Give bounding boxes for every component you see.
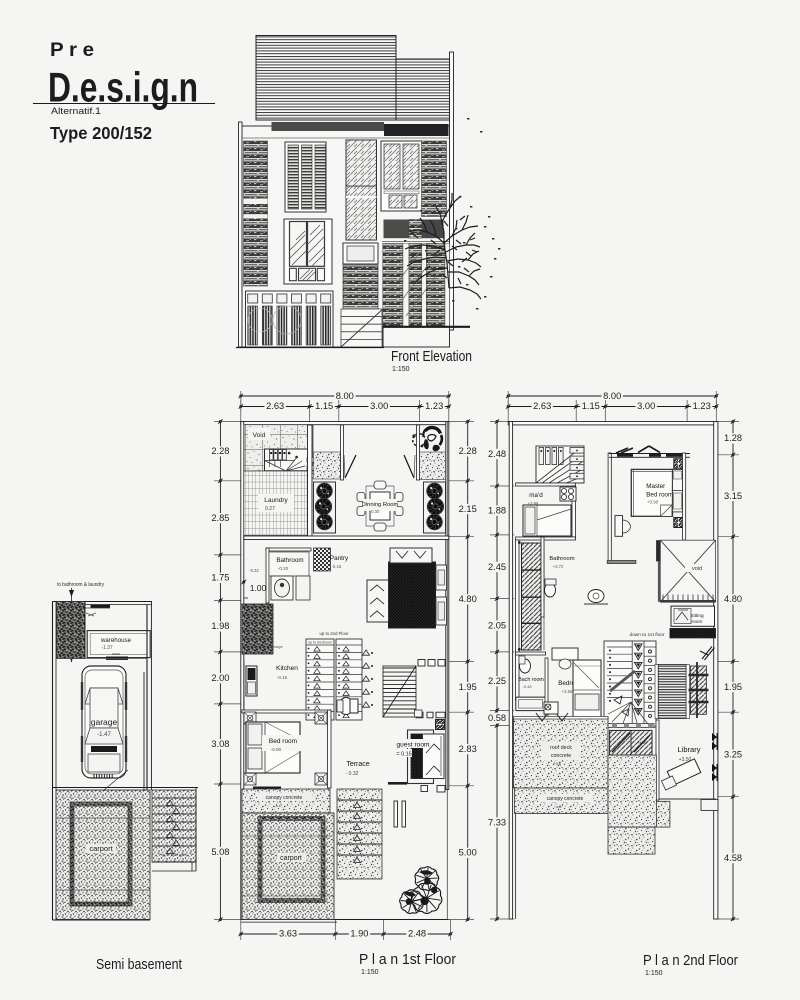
svg-text:1.88: 1.88: [488, 505, 506, 515]
svg-text:1:150: 1:150: [361, 969, 379, 976]
svg-text:2.63: 2.63: [266, 401, 284, 411]
svg-text:4.58: 4.58: [724, 853, 742, 863]
svg-text:1.15: 1.15: [315, 401, 333, 411]
svg-text:1.98: 1.98: [211, 621, 229, 631]
svg-text:-0.48: -0.48: [522, 684, 532, 689]
svg-text:0.27: 0.27: [265, 506, 275, 512]
svg-text:warehouse: warehouse: [100, 637, 131, 644]
svg-text:1.23: 1.23: [693, 401, 711, 411]
svg-text:Semi basement: Semi basement: [96, 957, 182, 973]
svg-text:carport: carport: [89, 844, 113, 853]
svg-text:7.33: 7.33: [488, 817, 506, 827]
svg-text:P l a n 1st Floor: P l a n 1st Floor: [359, 952, 456, 968]
svg-text:room: room: [692, 619, 703, 625]
svg-text:2.48: 2.48: [488, 449, 506, 459]
svg-text:+3.55: +3.55: [562, 689, 573, 694]
svg-text:3.63: 3.63: [279, 928, 297, 938]
svg-text:-0.15: -0.15: [277, 675, 288, 680]
svg-text:-1.37: -1.37: [101, 645, 113, 651]
svg-text:2.45: 2.45: [488, 562, 506, 572]
svg-text:1.15: 1.15: [582, 401, 600, 411]
svg-text:3.08: 3.08: [211, 739, 229, 749]
svg-text:Kitchen: Kitchen: [276, 665, 298, 672]
svg-text:Bed room: Bed room: [646, 492, 673, 499]
svg-text:guest room: guest room: [397, 742, 430, 749]
svg-text:canopy concrete: canopy concrete: [547, 796, 584, 802]
svg-text:2.05: 2.05: [488, 620, 506, 630]
svg-text:+3.72: +3.72: [553, 564, 564, 569]
svg-text:-0.90: -0.90: [271, 747, 282, 752]
svg-text:Bathroom: Bathroom: [549, 556, 574, 562]
svg-text:-0.20: -0.20: [278, 566, 289, 571]
svg-text:P l a n 2nd Floor: P l a n 2nd Floor: [643, 953, 738, 969]
svg-text:Terrace: Terrace: [346, 761, 369, 768]
svg-text:carport: carport: [280, 855, 302, 862]
svg-text:up to bedroom: up to bedroom: [308, 641, 333, 645]
svg-text:1:150: 1:150: [392, 366, 410, 373]
svg-text:2.25: 2.25: [488, 676, 506, 686]
svg-text:1.23: 1.23: [425, 401, 443, 411]
svg-text:2.83: 2.83: [459, 744, 477, 754]
svg-text:+0.30: +0.30: [369, 509, 380, 514]
svg-text:3.00: 3.00: [370, 401, 388, 411]
svg-text:up to 2nd Floor: up to 2nd Floor: [320, 631, 349, 636]
svg-text:1.95: 1.95: [459, 682, 477, 692]
svg-text:Library: Library: [678, 745, 701, 754]
svg-text:ma'd: ma'd: [529, 492, 543, 499]
svg-text:Front Elevation: Front Elevation: [391, 348, 472, 365]
svg-text:to bathroom & laundry: to bathroom & laundry: [57, 582, 104, 588]
svg-text:roof deck: roof deck: [550, 745, 572, 751]
svg-text:-1.47: -1.47: [97, 732, 111, 738]
svg-text:Dinning Room: Dinning Room: [362, 502, 399, 508]
svg-text:-1.0: -1.0: [275, 803, 283, 808]
svg-text:1.00: 1.00: [250, 583, 267, 593]
svg-text:Bed room: Bed room: [269, 738, 297, 745]
svg-text:= 0.15: = 0.15: [396, 752, 411, 758]
svg-text:5.08: 5.08: [211, 847, 229, 857]
svg-text:P r e: P r e: [50, 40, 94, 61]
svg-text:void: void: [692, 566, 702, 572]
svg-text:Alternatif.1: Alternatif.1: [51, 106, 101, 116]
svg-text:5.00: 5.00: [459, 848, 477, 858]
svg-text:Laundry: Laundry: [264, 497, 288, 504]
svg-text:1.95: 1.95: [724, 682, 742, 692]
svg-text:8.00: 8.00: [336, 391, 354, 401]
svg-text:3.00: 3.00: [637, 401, 655, 411]
svg-text:2.63: 2.63: [533, 401, 551, 411]
svg-text:-4.0: -4.0: [555, 804, 563, 809]
svg-text:concrete: concrete: [551, 753, 571, 759]
svg-text:- 0.32: - 0.32: [346, 771, 359, 777]
svg-text:3.25: 3.25: [724, 749, 742, 759]
svg-text:3.15: 3.15: [724, 491, 742, 501]
svg-text:+4.20: +4.20: [637, 741, 647, 745]
svg-text:2.85: 2.85: [211, 513, 229, 523]
svg-text:+3.90: +3.90: [647, 500, 659, 505]
svg-text:2.28: 2.28: [211, 446, 229, 456]
svg-text:0.58: 0.58: [488, 713, 506, 723]
svg-text:+3.6: +3.6: [553, 761, 562, 766]
svg-text:1.90: 1.90: [350, 928, 368, 938]
svg-text:down to 1st floor: down to 1st floor: [630, 632, 666, 637]
svg-text:-0.22: -0.22: [249, 568, 259, 573]
svg-text:up to front yard: up to front yard: [161, 853, 187, 857]
svg-text:4.80: 4.80: [459, 594, 477, 604]
svg-text:storage: storage: [269, 644, 283, 649]
svg-text:2.48: 2.48: [408, 928, 426, 938]
svg-text:1.75: 1.75: [211, 573, 229, 583]
svg-text:8.00: 8.00: [603, 391, 621, 401]
svg-text:Pantry: Pantry: [330, 555, 349, 562]
svg-text:Void: Void: [253, 432, 266, 439]
svg-text:garage: garage: [91, 717, 118, 727]
svg-text:Sitting: Sitting: [690, 613, 704, 619]
svg-text:4.80: 4.80: [724, 594, 742, 604]
svg-text:Master: Master: [646, 483, 665, 490]
svg-text:canopy concrete: canopy concrete: [266, 795, 303, 801]
svg-text:2.00: 2.00: [211, 673, 229, 683]
svg-text:0.15: 0.15: [333, 564, 342, 569]
svg-text:Bach room: Bach room: [518, 677, 544, 683]
svg-text:Type 200/152: Type 200/152: [50, 123, 152, 143]
svg-text:2.15: 2.15: [459, 504, 477, 514]
svg-text:Bathroom: Bathroom: [276, 557, 303, 564]
svg-text:2.28: 2.28: [459, 446, 477, 456]
svg-text:1:150: 1:150: [645, 970, 663, 977]
svg-text:1.28: 1.28: [724, 433, 742, 443]
